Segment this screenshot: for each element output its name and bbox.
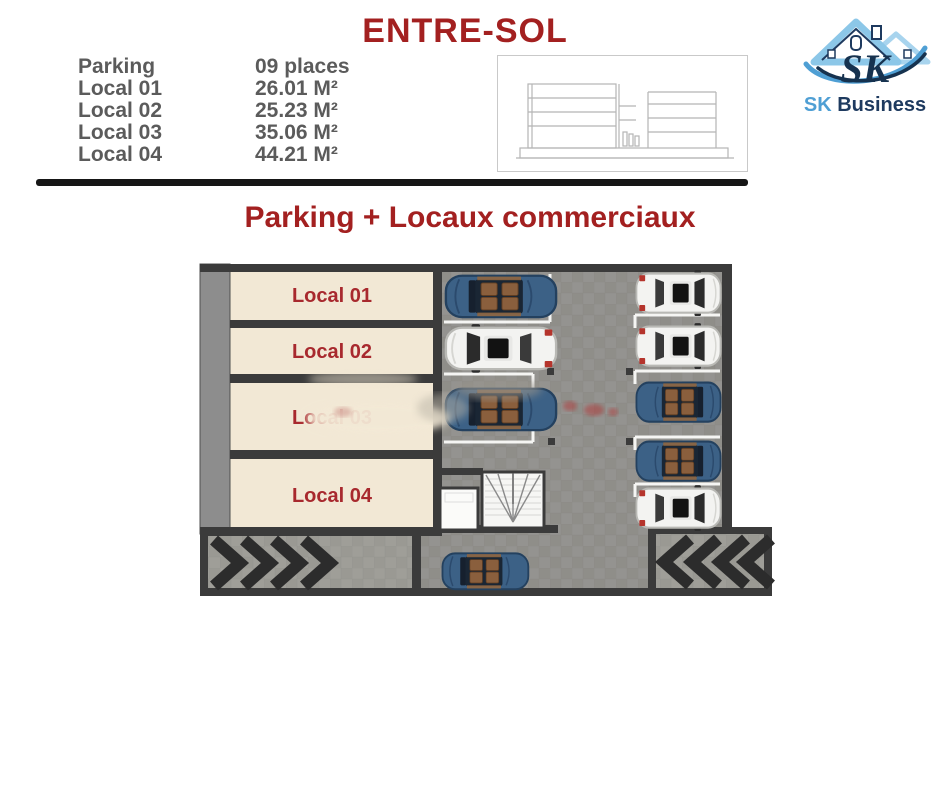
logo-wordmark: SK Business [798, 94, 932, 117]
legend-label: Local 01 [78, 78, 255, 100]
legend-value: 25.23 M² [255, 100, 338, 122]
legend-value: 09 places [255, 56, 350, 78]
car-white-top-view [636, 323, 720, 369]
legend-row-local-02: Local 02 25.23 M² [78, 100, 350, 122]
flyer-page: ENTRE-SOL Parking 09 places Local 01 26.… [0, 0, 940, 788]
page-title: ENTRE-SOL [0, 12, 930, 51]
legend-row-local-03: Local 03 35.06 M² [78, 122, 350, 144]
left-outer-wall [200, 264, 230, 534]
room-label-local-02: Local 02 [292, 341, 372, 363]
logo-name-first: SK [804, 94, 832, 116]
car-blue-top-view [636, 383, 720, 422]
legend-row-local-04: Local 04 44.21 M² [78, 144, 350, 166]
legend-row-local-01: Local 01 26.01 M² [78, 78, 350, 100]
car-white-top-view [636, 485, 720, 531]
legend-row-parking: Parking 09 places [78, 56, 350, 78]
legend-value: 35.06 M² [255, 122, 338, 144]
car-blue-top-view [442, 553, 528, 589]
car-white-top-view [446, 324, 556, 373]
logo-monogram: SK [841, 46, 892, 91]
logo-name-rest: Business [832, 94, 926, 116]
sk-business-logo: SK SK Business [798, 6, 932, 118]
floor-plan-drawing: Local 01 Local 02 Local 03 Local 04 [198, 260, 782, 600]
legend-label: Local 03 [78, 122, 255, 144]
room-label-local-04: Local 04 [292, 485, 373, 507]
legend-label: Local 04 [78, 144, 255, 166]
legend-label: Local 02 [78, 100, 255, 122]
elevation-drawing-icon [498, 56, 746, 170]
car-white-top-view [636, 270, 720, 316]
legend-label: Parking [78, 56, 255, 78]
floor-plan: Local 01 Local 02 Local 03 Local 04 [198, 260, 782, 600]
area-legend: Parking 09 places Local 01 26.01 M² Loca… [78, 56, 350, 166]
room-label-local-01: Local 01 [292, 285, 372, 307]
legend-value: 44.21 M² [255, 144, 338, 166]
section-title: Parking + Locaux commerciaux [0, 201, 940, 235]
house-roof-icon: SK [798, 6, 932, 92]
car-blue-top-view [636, 442, 720, 481]
section-divider [36, 179, 748, 186]
legend-value: 26.01 M² [255, 78, 338, 100]
building-elevation-sketch [497, 55, 748, 172]
car-blue-top-view [446, 276, 556, 317]
